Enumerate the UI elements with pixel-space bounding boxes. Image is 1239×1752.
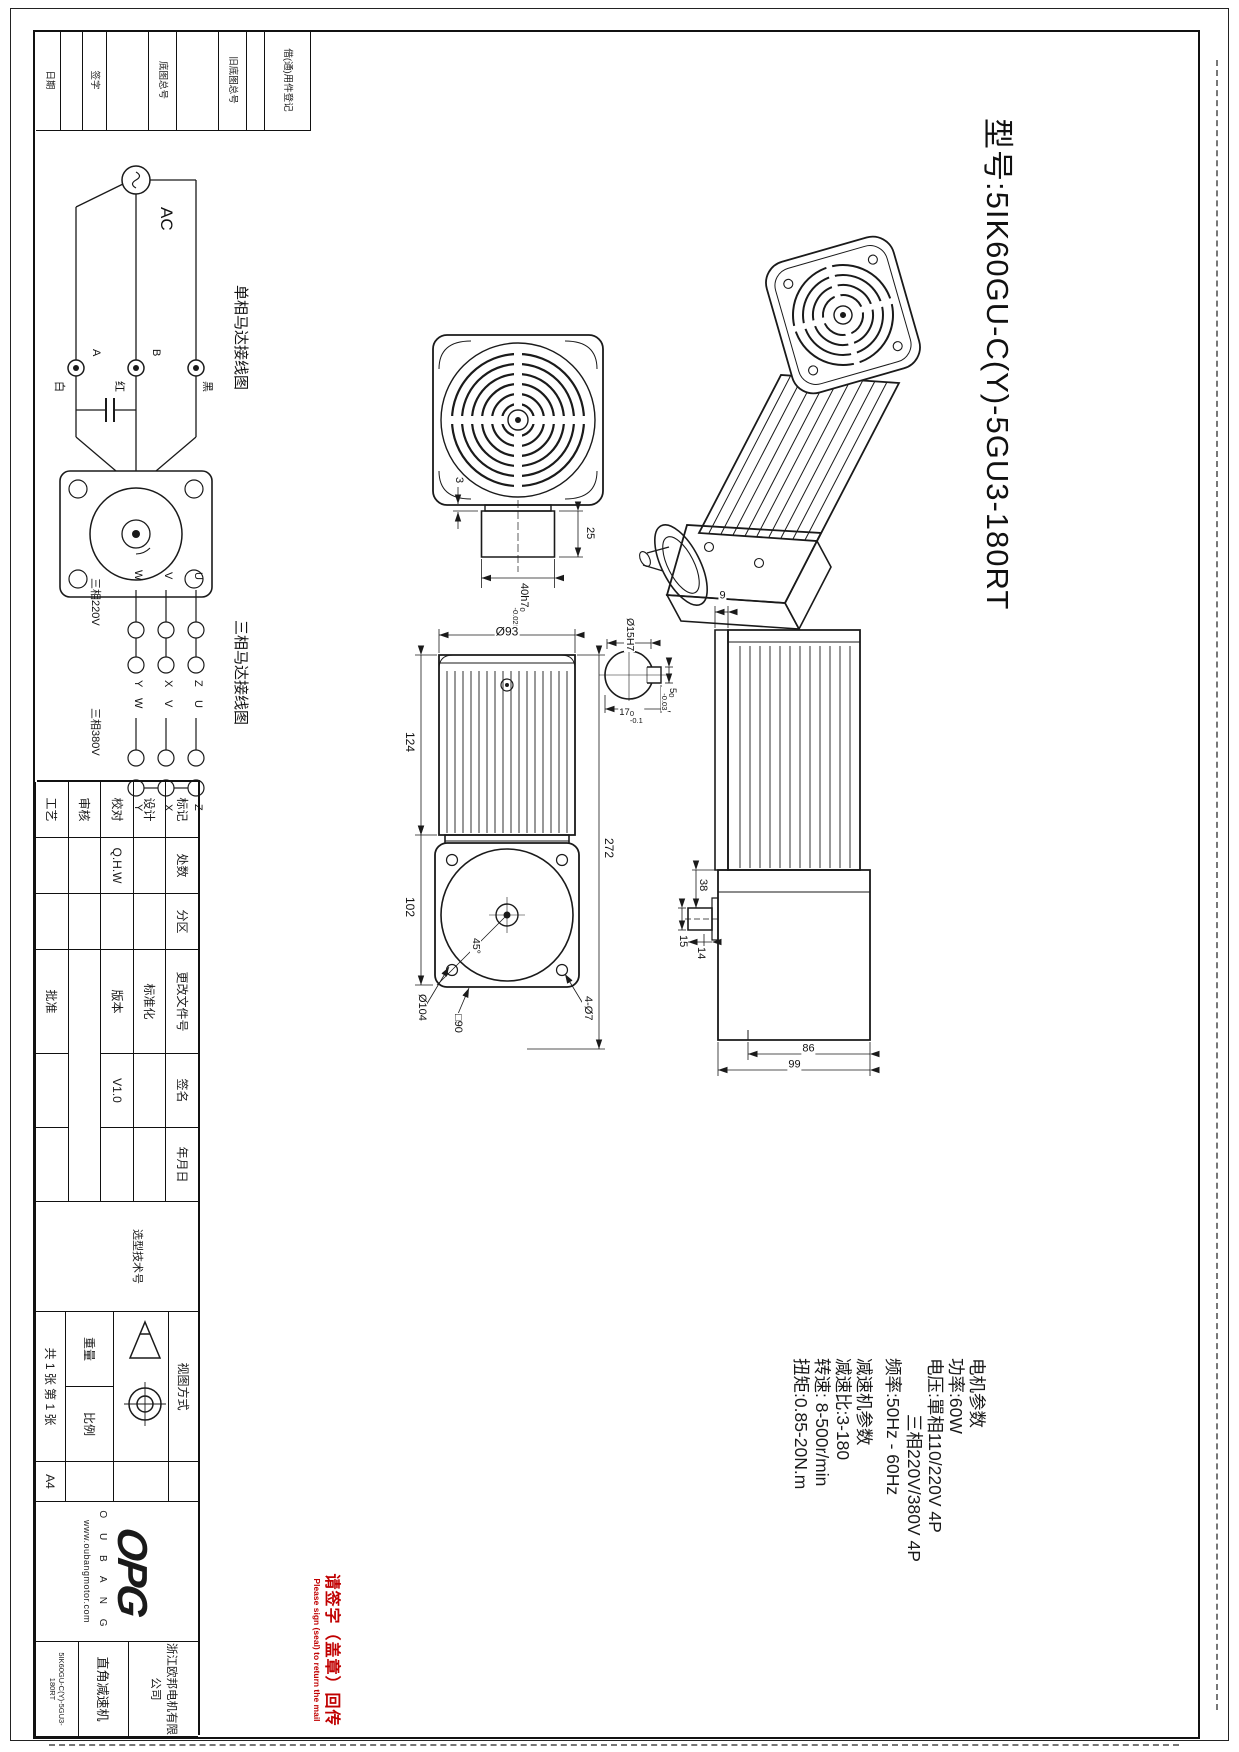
landscape-page: 型号:5IK60GU-C(Y)-5GU3-180RT 电机参数 功率:60W 电…	[0, 0, 1239, 1752]
base-no-label: 底图总号	[148, 30, 176, 130]
tb-cell	[35, 838, 68, 894]
tb-company: 浙江欧邦电机有限 公司	[128, 1642, 198, 1737]
terminal-a-label: A	[90, 349, 102, 356]
tb-projection-symbols	[113, 1312, 168, 1462]
stamp-english: Please sign (seal) to return the mail	[312, 1545, 322, 1752]
fold-mark-top	[1216, 60, 1218, 1710]
tb-cell	[133, 894, 166, 950]
speed: 转速: 8-500r/min	[811, 1358, 832, 1718]
tb-product: 直角减速机	[78, 1642, 128, 1737]
dim-key-width-5: 50-0.03	[661, 687, 677, 711]
tb-cell	[35, 894, 68, 950]
dim-height-86: 86	[801, 1044, 815, 1055]
borrow-record-label: 借(通)用件登记	[264, 30, 310, 130]
tb-paper-size: A4	[35, 1462, 65, 1502]
voltage-2: 三相220V/380V 4P	[903, 1358, 924, 1718]
single-phase-wiring: 单相马达接线图	[36, 135, 254, 605]
tb-cell	[65, 1462, 113, 1502]
title-block: 标记 处数 分区 更改文件号 签名 年月日 设计 标准化 校对 Q.H.W 版本…	[37, 780, 200, 1735]
tb-selection-no: 选型技术号	[35, 1202, 198, 1312]
dim-height-99: 99	[787, 1060, 801, 1071]
isometric-drawing	[639, 215, 939, 615]
tb-cell	[35, 1128, 68, 1202]
single-phase-diagram	[36, 135, 254, 605]
dim-motor-124: 124	[404, 731, 416, 753]
tb-design: 设计	[133, 782, 166, 838]
tb-part-no: 5IK60GU-C(Y)-5GU3-180RT	[35, 1642, 78, 1737]
blank-cell	[106, 30, 148, 130]
tb-version: V1.0	[100, 1054, 133, 1128]
label-three-phase-380: 三相380V	[88, 708, 104, 756]
tb-mark: 标记	[165, 782, 198, 838]
tb-scale: 比例	[65, 1387, 113, 1462]
dim-key-height-17: 170-0.1	[618, 708, 644, 724]
torque: 扭矩:0.85-20N.m	[790, 1358, 811, 1718]
dim-offset-38: 38	[697, 878, 708, 892]
dim-step-3: 3	[453, 476, 464, 484]
tb-standardize: 标准化	[133, 950, 166, 1054]
rear-view: 25 3 40h70-0.025	[416, 320, 611, 630]
stamp-chinese: 请签字（盖章）回传	[322, 1545, 346, 1752]
tb-signature: 签名	[165, 1054, 198, 1128]
tb-approve: 批准	[35, 950, 68, 1054]
x-label-220: X	[162, 680, 174, 687]
dim-holes-4x7: 4-Ø7	[582, 995, 593, 1021]
u-label-380: U	[192, 700, 204, 708]
v-label-220: V	[162, 572, 174, 579]
ratio: 减速比:3-180	[832, 1358, 853, 1718]
tb-cell	[133, 1054, 166, 1128]
dim-chamfer-45: 45°	[471, 937, 482, 955]
page-title: 型号:5IK60GU-C(Y)-5GU3-180RT	[978, 118, 1023, 610]
tb-cell	[68, 894, 101, 950]
w-label-220: W	[132, 570, 144, 580]
tb-process: 工艺	[35, 782, 68, 838]
v-label-380: V	[162, 700, 174, 707]
company-line-1: 浙江欧邦电机有限	[164, 1643, 180, 1735]
company-line-2: 公司	[148, 1678, 164, 1701]
wire-white-label: 白	[52, 381, 68, 392]
y-label-220: Y	[132, 680, 144, 687]
label-three-phase-220: 三相220V	[88, 578, 104, 626]
z-label-220: Z	[192, 680, 204, 687]
tb-cell	[100, 894, 133, 950]
front-view: Ø15H7 50-0.03 170-0.1 Ø93 272 124 102 Ø1…	[377, 615, 677, 1095]
front-view-drawing	[377, 615, 677, 1095]
blank-cell	[176, 30, 218, 130]
tb-cell	[133, 838, 166, 894]
fold-mark-right	[49, 1744, 1179, 1746]
terminal-b-label: B	[150, 349, 162, 356]
parameter-block: 电机参数 功率:60W 电压:單相110/220V 4P 三相220V/380V…	[790, 1358, 987, 1718]
tb-review: 审核	[68, 782, 101, 838]
side-view-drawing	[676, 590, 894, 1090]
tb-zone: 分区	[165, 894, 198, 950]
tb-version-label: 版本	[100, 950, 133, 1054]
dim-bore-15h7: Ø15H7	[625, 617, 636, 652]
power: 功率:60W	[945, 1358, 966, 1718]
u-label-220: U	[192, 572, 204, 580]
isometric-view	[639, 215, 939, 615]
tb-cell	[168, 1462, 198, 1502]
tb-cell	[68, 838, 101, 894]
drawing-sheet: 型号:5IK60GU-C(Y)-5GU3-180RT 电机参数 功率:60W 电…	[0, 0, 1239, 1752]
dim-total-272: 272	[603, 837, 615, 859]
oubang-letters: O U B A N G	[97, 1510, 109, 1632]
company-url: www.oubangmotor.com	[82, 1520, 93, 1623]
dim-boss-14: 14	[695, 946, 706, 960]
tb-cell	[113, 1462, 168, 1502]
tb-cell	[133, 1128, 166, 1202]
tb-proof-name: Q.H.W	[100, 838, 133, 894]
voltage-1: 电压:單相110/220V 4P	[924, 1358, 945, 1718]
reducer-params-header: 减速机参数	[853, 1358, 874, 1718]
tb-cell	[68, 950, 101, 1202]
tb-change-doc: 更改文件号	[165, 950, 198, 1054]
dim-shaft-15: 15	[677, 934, 688, 948]
frequency: 频率:50Hz - 60Hz	[882, 1358, 903, 1718]
tb-sheet-count: 共 1 张 第 1 张	[35, 1312, 65, 1462]
tb-proof: 校对	[100, 782, 133, 838]
tb-view-method: 视图方式	[168, 1312, 198, 1462]
motor-params-header: 电机参数	[966, 1358, 987, 1718]
blank-cell	[246, 30, 264, 130]
return-stamp: 请签字（盖章）回传 Please sign (seal) to return t…	[312, 1545, 346, 1752]
tb-qty: 处数	[165, 838, 198, 894]
tb-cell	[35, 1054, 68, 1128]
dim-flange-dia-104: Ø104	[416, 993, 427, 1022]
signature-label: 签字	[82, 30, 106, 130]
side-view: 9 15 38 14 86 99	[676, 590, 894, 1090]
dim-flange-square-90: □90	[452, 1013, 463, 1034]
dim-body-dia-93: Ø93	[495, 625, 520, 637]
tb-logo-cell: OPG O U B A N G www.oubangmotor.com	[35, 1502, 198, 1642]
old-base-no-label: 旧底图总号	[218, 30, 246, 130]
blank-cell	[60, 30, 82, 130]
dim-shaft-length-25: 25	[584, 526, 595, 540]
w-label-380: W	[132, 698, 144, 708]
dim-plate-9: 9	[718, 591, 726, 602]
tb-weight: 重量	[65, 1312, 113, 1387]
wire-red-label: 红	[112, 381, 128, 392]
border-registration-strip: 借(通)用件登记 旧底图总号 底图总号 签字 日期	[36, 30, 311, 131]
date-label: 日期	[40, 30, 60, 130]
tb-cell	[100, 1128, 133, 1202]
dim-gear-102: 102	[404, 896, 416, 918]
ac-source-label: AC	[156, 207, 176, 231]
first-angle-projection-icon	[122, 1312, 168, 1442]
tb-date: 年月日	[165, 1128, 198, 1202]
wire-black-label: 黑	[200, 381, 216, 392]
opg-logo: OPG	[113, 1525, 153, 1618]
